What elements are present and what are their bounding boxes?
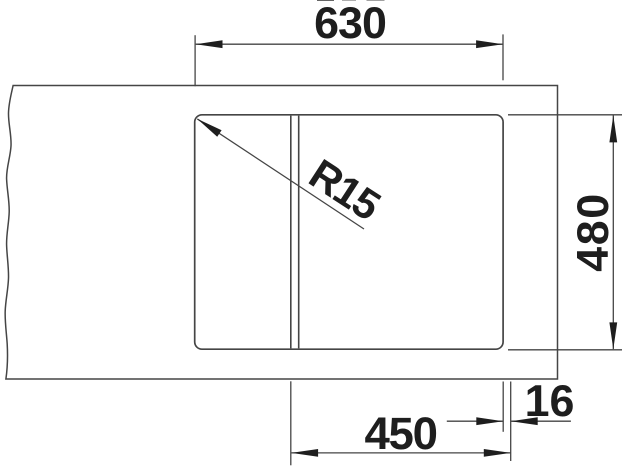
- svg-text:R15: R15: [301, 150, 388, 230]
- svg-text:450: 450: [365, 408, 437, 459]
- svg-text:16: 16: [525, 376, 575, 426]
- svg-text:630: 630: [314, 0, 386, 48]
- svg-text:480: 480: [568, 192, 618, 272]
